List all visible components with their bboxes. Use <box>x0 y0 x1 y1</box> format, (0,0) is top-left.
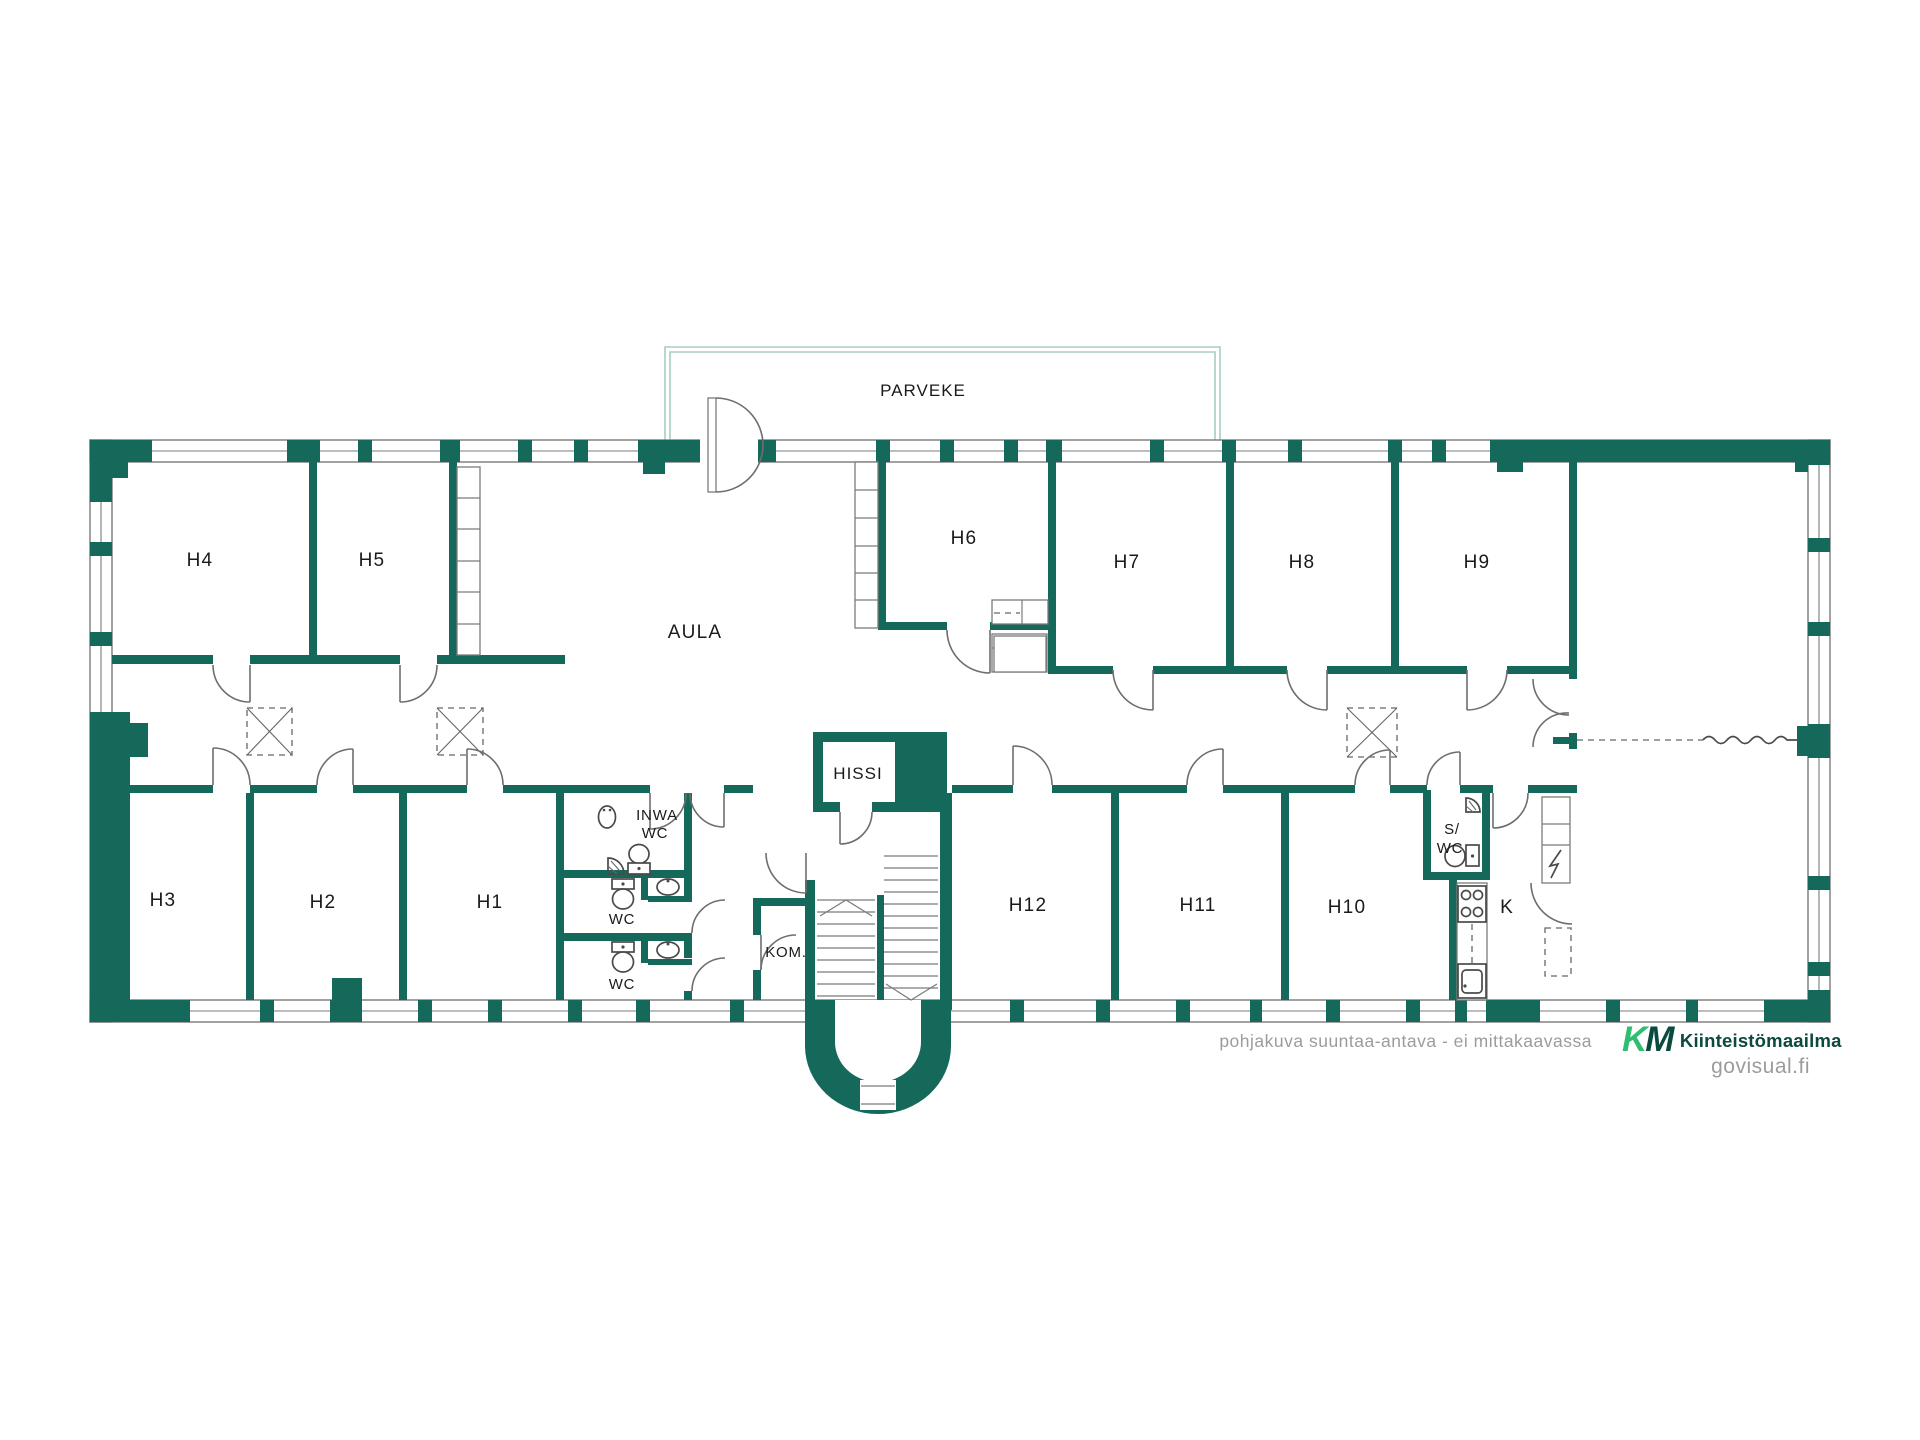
doors <box>213 398 1572 991</box>
site-link: govisual.fi <box>1500 1055 1810 1079</box>
stair-bay <box>805 1000 951 1114</box>
tall-cabinets-k <box>1542 797 1571 976</box>
label-h3: H3 <box>150 890 177 911</box>
km-logo-icon: KM <box>1622 1020 1672 1060</box>
wardrobe-strip-aula <box>457 467 480 655</box>
label-k: K <box>1500 897 1514 918</box>
label-s: S/ <box>1444 821 1460 838</box>
brand-name: Kiinteistömaailma <box>1680 1030 1842 1052</box>
label-kom: KOM. <box>765 944 807 961</box>
label-wc1: WC <box>609 911 636 928</box>
km-logo: KM Kiinteistömaailma <box>1622 1020 1812 1060</box>
toil-wc2 <box>612 942 634 972</box>
stairs-up-arrow <box>820 900 872 916</box>
label-inwa: INWA <box>636 807 678 824</box>
kitchen-sink <box>1458 964 1486 998</box>
wardrobe-strip-h6 <box>855 462 878 628</box>
stove <box>1458 886 1486 922</box>
label-h11: H11 <box>1179 895 1216 916</box>
sink-wc1 <box>657 879 679 895</box>
label-h12: H12 <box>1009 895 1047 916</box>
toilet-inwa-wc <box>628 845 650 875</box>
floorplan-canvas: PARVEKE H4 H5 AULA H6 H7 H8 H9 H3 H2 H1 … <box>0 0 1920 1440</box>
label-h2: H2 <box>310 892 337 913</box>
label-h7: H7 <box>1114 552 1141 573</box>
label-h5: H5 <box>359 550 386 571</box>
floorplan-svg: PARVEKE H4 H5 AULA H6 H7 H8 H9 H3 H2 H1 … <box>0 0 1920 1440</box>
opening-marker <box>1577 737 1797 744</box>
label-h1: H1 <box>477 892 504 913</box>
toilet-wc1 <box>612 879 634 909</box>
elevator-door <box>840 812 872 844</box>
label-wc2: WC <box>609 976 636 993</box>
label-hissi: HISSI <box>833 764 882 783</box>
label-aula: AULA <box>668 622 722 643</box>
label-inwa-wc: WC <box>642 825 669 842</box>
km-logo-m: M <box>1645 1020 1672 1059</box>
label-h6: H6 <box>951 528 978 549</box>
shower-icon-s-wc <box>1466 798 1480 812</box>
sink-inwa-wc <box>599 806 616 828</box>
km-logo-k: K <box>1622 1020 1645 1059</box>
cabinet-corridor-h12 <box>994 636 1046 672</box>
label-h9: H9 <box>1464 552 1491 573</box>
shaft-box-1 <box>247 708 292 755</box>
room-labels: PARVEKE H4 H5 AULA H6 H7 H8 H9 H3 H2 H1 … <box>150 381 1514 993</box>
label-h8: H8 <box>1289 552 1316 573</box>
sink-wc2 <box>657 942 679 958</box>
label-s-wc: WC <box>1437 840 1464 857</box>
stairs-down-arrow <box>886 984 937 1000</box>
label-parveke: PARVEKE <box>880 381 966 400</box>
shaft-box-2 <box>437 708 483 755</box>
disclaimer-text: pohjakuva suuntaa-antava - ei mittakaava… <box>1100 1031 1592 1052</box>
balcony-door <box>700 398 763 492</box>
label-h4: H4 <box>187 550 214 571</box>
label-h10: H10 <box>1328 897 1366 918</box>
